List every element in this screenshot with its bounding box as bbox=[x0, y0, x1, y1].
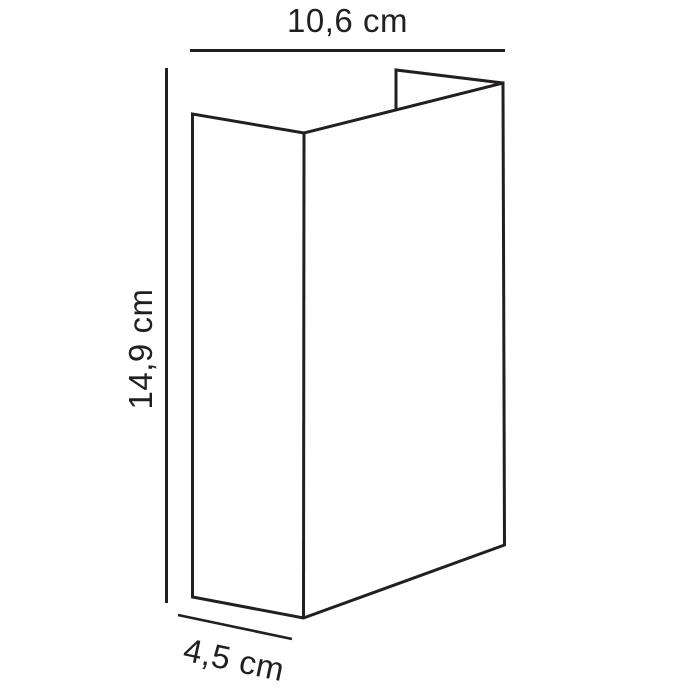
product-front-corner-edge bbox=[304, 133, 305, 618]
width-dimension-label: 10,6 cm bbox=[190, 4, 505, 38]
product-body-outline bbox=[193, 83, 505, 618]
dimension-diagram: 10,6 cm 14,9 cm 4,5 cm bbox=[0, 0, 690, 690]
product-line-drawing bbox=[0, 0, 690, 690]
height-dimension-label: 14,9 cm bbox=[124, 279, 158, 419]
